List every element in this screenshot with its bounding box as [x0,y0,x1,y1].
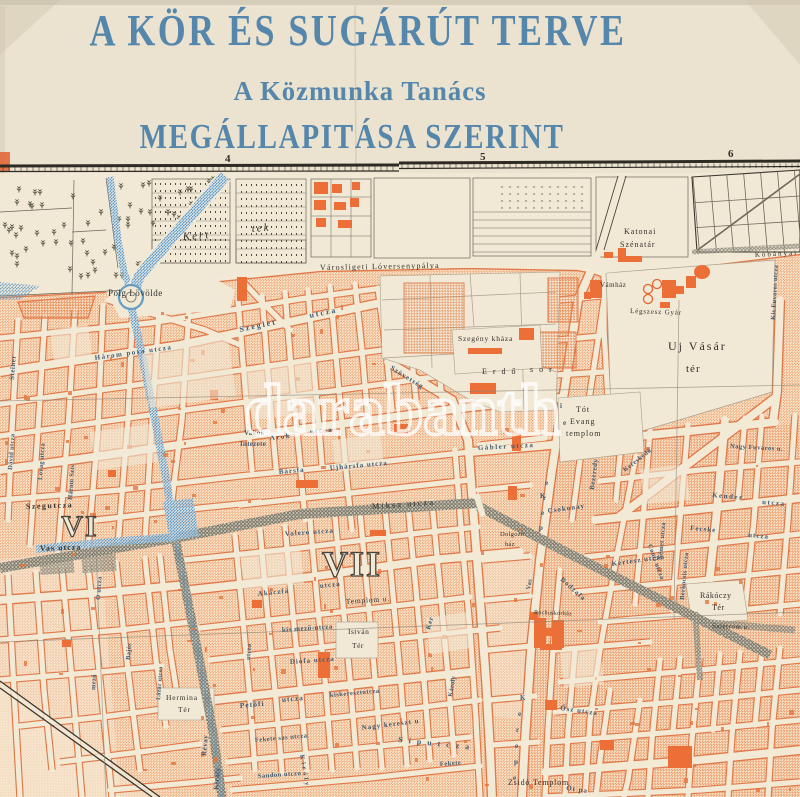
svg-text:Tót: Tót [576,405,590,414]
svg-text:Tér: Tér [352,641,364,650]
svg-text:A KÖR ÉS SUGÁRÚT TERVE: A KÖR ÉS SUGÁRÚT TERVE [90,6,627,55]
svg-text:e: e [541,509,544,517]
svg-text:Uj Vásár: Uj Vásár [668,339,727,353]
svg-text:Ó utcza: Ó utcza [94,576,104,601]
svg-text:Vámház: Vámház [600,281,626,289]
svg-text:Zsidó Templom: Zsidó Templom [508,778,569,787]
svg-text:Tér: Tér [178,705,191,714]
svg-text:Szegutcza: Szegutcza [26,500,74,511]
svg-text:Szegény kháza: Szegény kháza [458,334,513,343]
svg-text:Dolgozó: Dolgozó [500,531,525,538]
svg-text:i: i [560,402,562,410]
svg-text:Fekete: Fekete [440,760,462,768]
svg-text:Katonai: Katonai [624,227,656,236]
svg-text:Szénatár: Szénatár [620,240,656,249]
svg-text:VII: VII [322,544,382,584]
svg-text:Polg Lövölde: Polg Lövölde [108,288,163,298]
svg-text:e: e [518,710,521,718]
svg-text:Bajós: Bajós [125,642,133,660]
svg-text:e: e [515,742,518,750]
svg-text:tér: tér [686,363,701,375]
svg-text:VI: VI [61,510,98,543]
svg-text:e: e [563,419,566,427]
svg-text:Hermina: Hermina [166,693,198,702]
svg-text:utcza: utcza [245,643,253,660]
svg-text:Rákóczy: Rákóczy [700,591,732,600]
svg-text:r: r [516,726,519,734]
svg-text:Evang: Evang [570,417,595,426]
svg-text:tek: tek [251,222,271,235]
svg-text:MEGÁLLAPITÁSA SZERINT: MEGÁLLAPITÁSA SZERINT [140,117,565,156]
svg-text:Kert: Kert [181,229,210,243]
svg-text:e: e [513,774,516,782]
svg-text:templom: templom [566,429,601,438]
svg-text:K: K [520,694,526,702]
svg-text:Salétrom u.: Salétrom u. [712,622,750,631]
svg-text:Tér: Tér [712,603,725,612]
svg-text:István: István [348,627,369,636]
svg-text:darabanth: darabanth [244,370,560,450]
svg-text:p: p [514,758,518,766]
svg-text:utcza: utcza [281,693,304,704]
svg-text:r: r [543,494,546,502]
svg-text:Vas utcza: Vas utcza [40,543,82,553]
svg-text:e: e [545,479,548,487]
svg-text:p: p [539,524,543,532]
svg-text:6: 6 [728,148,734,160]
svg-text:A Közmunka Tanács: A Közmunka Tanács [234,76,487,106]
svg-text:mező: mező [90,674,98,691]
svg-text:ház: ház [505,541,515,548]
